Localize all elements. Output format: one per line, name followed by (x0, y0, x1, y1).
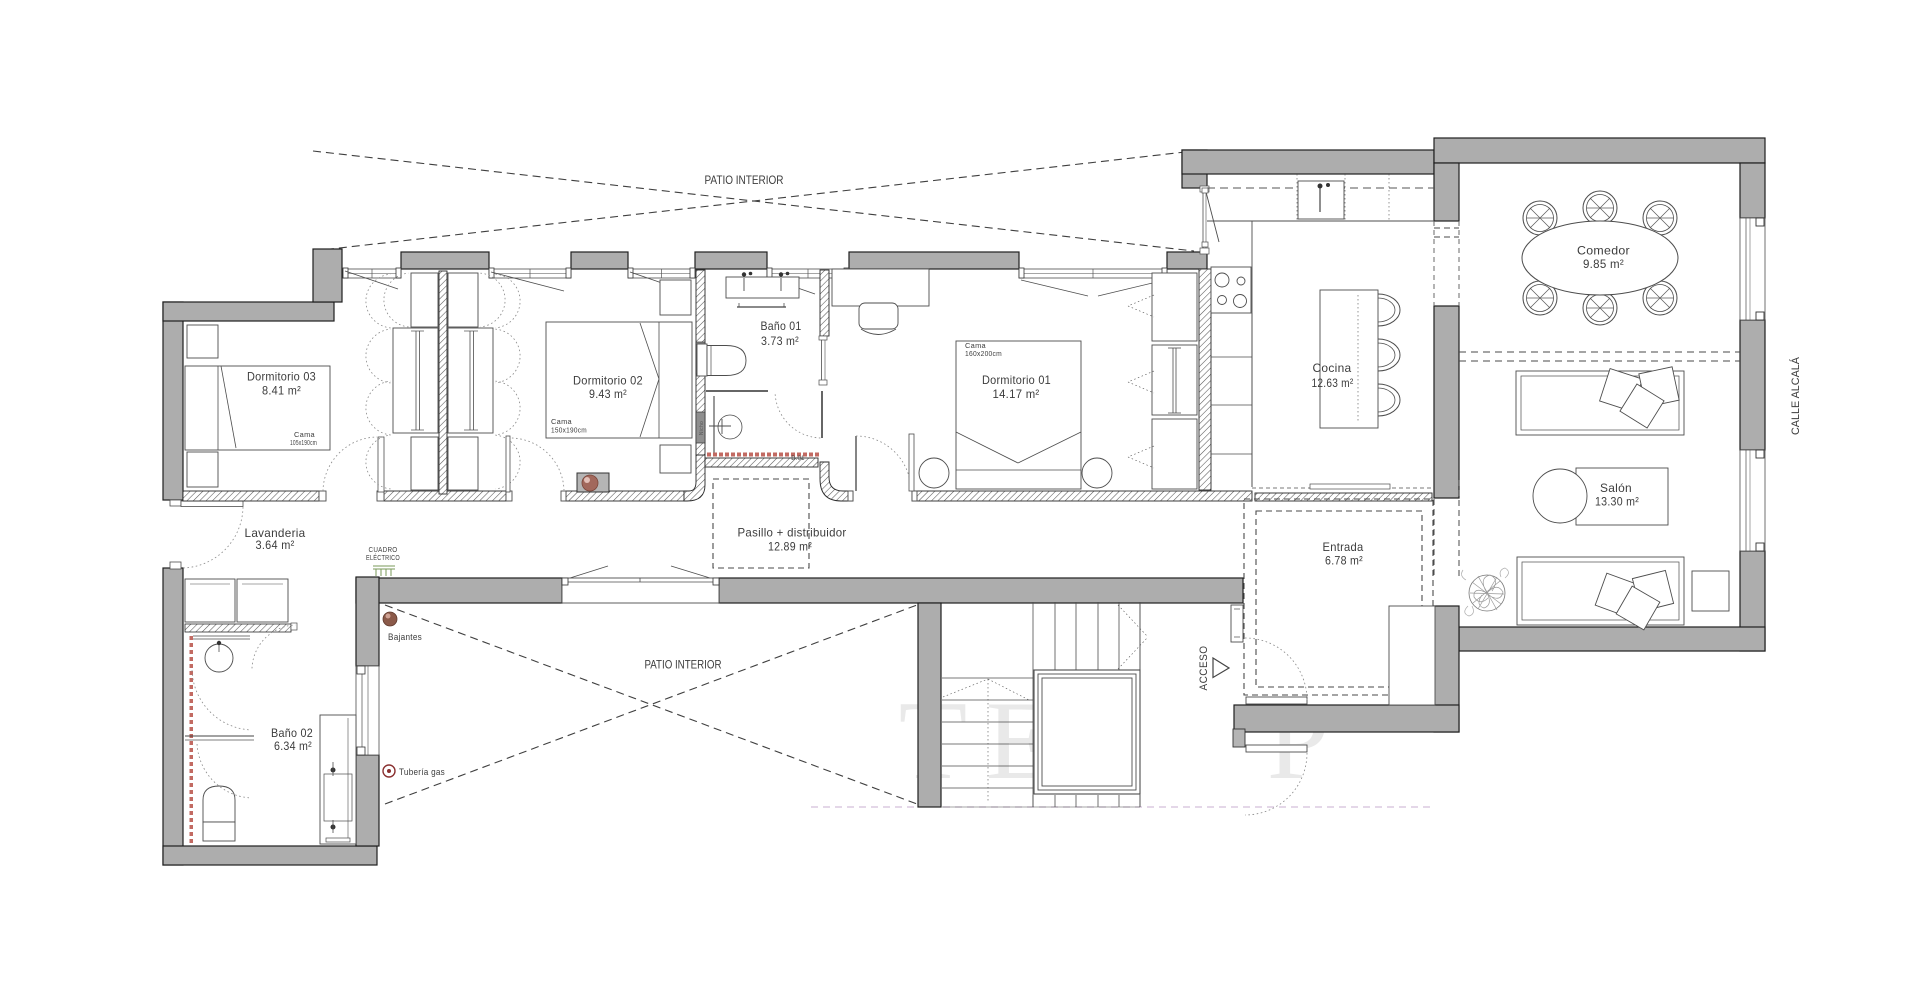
svg-text:3.73 m²: 3.73 m² (761, 334, 799, 348)
svg-text:Baño 02: Baño 02 (271, 726, 313, 740)
svg-text:Pasillo + distribuidor: Pasillo + distribuidor (738, 526, 847, 540)
svg-text:13.30 m²: 13.30 m² (1595, 495, 1639, 509)
svg-text:Dormitorio 02: Dormitorio 02 (573, 374, 643, 388)
svg-text:6.78 m²: 6.78 m² (1325, 554, 1363, 568)
svg-text:12.63 m²: 12.63 m² (1312, 376, 1354, 390)
svg-text:Nicho: Nicho (699, 421, 705, 435)
svg-text:3.64 m²: 3.64 m² (256, 538, 295, 552)
svg-text:14.17 m²: 14.17 m² (993, 387, 1040, 401)
svg-text:Dormitorio 01: Dormitorio 01 (982, 373, 1051, 387)
svg-text:8.41 m²: 8.41 m² (262, 384, 301, 398)
svg-text:6.34 m²: 6.34 m² (274, 739, 312, 753)
svg-text:CUADRO: CUADRO (369, 547, 398, 554)
svg-text:Bajantes: Bajantes (388, 632, 422, 643)
svg-text:Entrada: Entrada (1323, 540, 1364, 554)
svg-text:PATIO INTERIOR: PATIO INTERIOR (645, 658, 722, 672)
svg-text:Dormitorio 03: Dormitorio 03 (247, 370, 316, 384)
svg-text:9.85 m²: 9.85 m² (1583, 257, 1624, 271)
svg-text:Tubería gas: Tubería gas (399, 767, 445, 778)
svg-text:12.89 m²: 12.89 m² (768, 540, 812, 554)
svg-text:Baño 01: Baño 01 (761, 319, 802, 333)
svg-text:PATIO INTERIOR: PATIO INTERIOR (705, 173, 784, 187)
svg-text:Comedor: Comedor (1577, 244, 1630, 258)
svg-text:ELÉCTRICO: ELÉCTRICO (366, 553, 400, 562)
svg-text:105x190cm: 105x190cm (290, 438, 317, 447)
svg-text:ACCESO: ACCESO (1198, 646, 1210, 691)
svg-text:9.43 m²: 9.43 m² (589, 387, 627, 401)
svg-text:CALLE ALCALÁ: CALLE ALCALÁ (1789, 356, 1802, 435)
svg-text:B.01: B.01 (791, 456, 805, 462)
svg-text:Salón: Salón (1600, 481, 1632, 495)
svg-text:160x200cm: 160x200cm (965, 349, 1002, 358)
svg-text:Cocina: Cocina (1313, 361, 1352, 375)
svg-text:150x190cm: 150x190cm (551, 426, 587, 435)
